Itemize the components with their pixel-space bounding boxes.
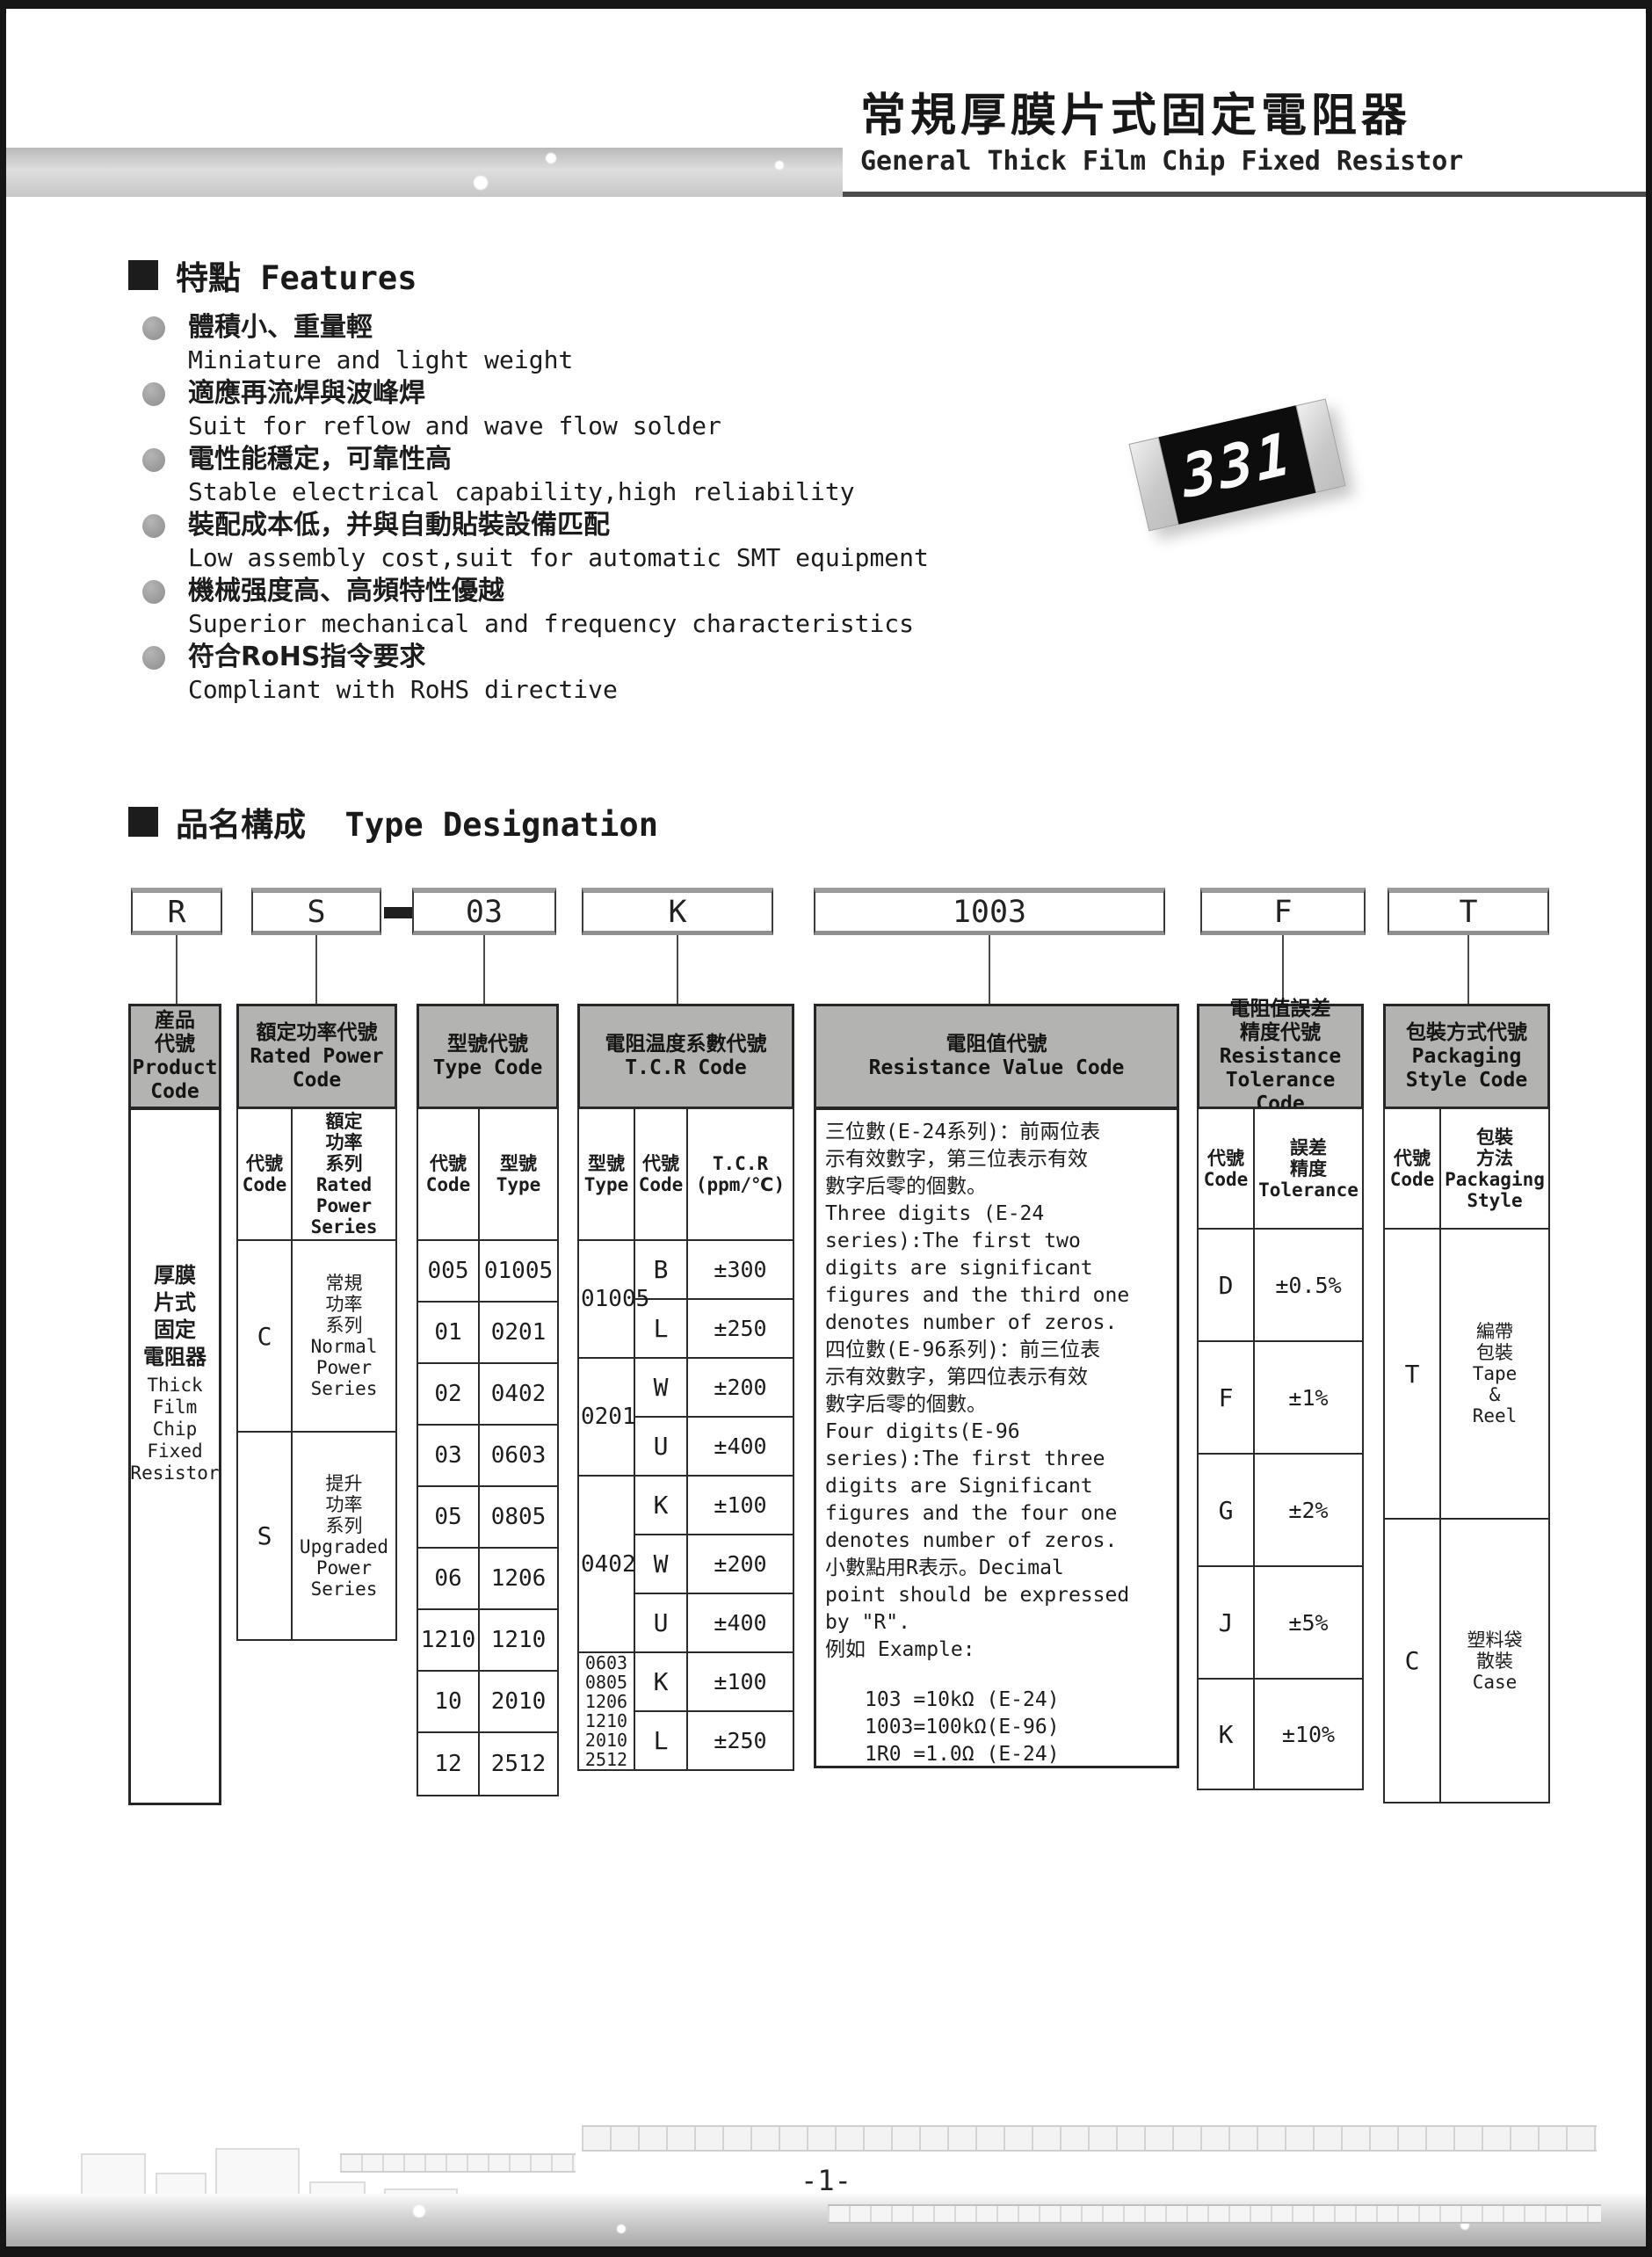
connector-line [989, 935, 990, 1004]
type-size: 0805 [479, 1486, 558, 1548]
type-code: 01 [417, 1302, 479, 1363]
code-box-product: R [131, 888, 222, 935]
feature-text-en: Compliant with RoHS directive [188, 674, 933, 706]
rated-power-column: 代號 Code 額定 功率 系列 Rated Power Series C 常規… [236, 1107, 397, 1641]
type-designation-heading: 品名構成 Type Designation [128, 798, 658, 845]
tcr-column: 型號 Type 代號 Code T.C.R (ppm/℃) 01005 B ±3… [577, 1107, 794, 1770]
type-size: 1206 [479, 1548, 558, 1609]
tolerance-code: J [1198, 1566, 1254, 1679]
feature-text-en: Suit for reflow and wave flow solder [188, 410, 933, 442]
feature-text-zh: 適應再流焊與波峰焊 [188, 377, 933, 410]
decor-squares-strip [582, 2125, 1597, 2152]
tcr-value: ±300 [687, 1240, 793, 1299]
tcr-type-list: 0603 0805 1206 1210 2010 2512 [578, 1652, 634, 1770]
tcr-value: ±400 [687, 1417, 793, 1476]
tcr-value: ±100 [687, 1476, 793, 1535]
tcr-value: ±200 [687, 1535, 793, 1593]
column-header-product: 産品 代號 Product Code [128, 1004, 221, 1109]
type-code: 1210 [417, 1609, 479, 1671]
tcr-code: W [634, 1535, 687, 1593]
page-title-zh: 常規厚膜片式固定電阻器 [860, 90, 1493, 142]
feature-text-zh: 機械强度高、高頻特性優越 [188, 575, 933, 608]
tcr-code: W [634, 1358, 687, 1417]
product-code-cell: 厚膜 片式 固定 電阻器 Thick Film Chip Fixed Resis… [128, 1107, 221, 1805]
packaging-column: 代號 Code 包裝 方法 Packaging Style T 編帶 包裝 Ta… [1383, 1107, 1550, 1803]
type-code-column: 代號 Code 型號 Type 00501005 010201 020402 0… [417, 1107, 559, 1796]
type-code: 005 [417, 1240, 479, 1302]
tolerance-code: K [1198, 1679, 1254, 1789]
tcr-value: ±400 [687, 1593, 793, 1652]
code-box-resistance: 1003 [814, 888, 1165, 935]
subheader-code: 代號 Code [634, 1108, 687, 1240]
connector-line [677, 935, 678, 1004]
resistor-chip-photo: 331 [1128, 398, 1345, 531]
feature-item: 適應再流焊與波峰焊 Suit for reflow and wave flow … [142, 377, 933, 442]
tcr-value: ±250 [687, 1299, 793, 1358]
tolerance-value: ±2% [1254, 1454, 1363, 1566]
resistance-value-examples: 103 =10kΩ (E-24) 1003=100kΩ(E-96) 1R0 =1… [865, 1687, 1177, 1768]
type-code: 02 [417, 1363, 479, 1425]
tcr-type: 01005 [578, 1240, 634, 1358]
tolerance-value: ±10% [1254, 1679, 1363, 1789]
bullet-icon [142, 646, 165, 670]
tolerance-code: G [1198, 1454, 1254, 1566]
feature-item: 符合RoHS指令要求 Compliant with RoHS directive [142, 641, 933, 706]
tcr-code: K [634, 1652, 687, 1711]
bullet-icon [142, 580, 165, 604]
tolerance-value: ±0.5% [1254, 1229, 1363, 1341]
power-code: S [237, 1432, 292, 1640]
power-series: 提升 功率 系列 Upgraded Power Series [292, 1432, 396, 1640]
tolerance-code: F [1198, 1341, 1254, 1454]
subheader-series: 額定 功率 系列 Rated Power Series [292, 1108, 396, 1240]
feature-item: 機械强度高、高頻特性優越 Superior mechanical and fre… [142, 575, 933, 640]
packaging-code: C [1384, 1519, 1440, 1803]
type-code: 05 [417, 1486, 479, 1548]
features-section-heading: 特點 Features [128, 251, 417, 299]
feature-text-en: Stable electrical capability,high reliab… [188, 476, 933, 508]
type-size: 2010 [479, 1671, 558, 1732]
tcr-code: K [634, 1476, 687, 1535]
subheader-code: 代號 Code [417, 1108, 479, 1240]
feature-text-en: Miniature and light weight [188, 345, 933, 376]
resistor-body: 331 [1159, 405, 1316, 524]
code-box-tolerance: F [1200, 888, 1366, 935]
resistance-value-cell: 三位數(E-24系列)：前兩位表 示有效數字，第三位表示有效 數字后零的個數。 … [814, 1107, 1179, 1768]
header-gradient-band [6, 148, 843, 197]
tcr-code: U [634, 1593, 687, 1652]
tcr-code: U [634, 1417, 687, 1476]
feature-text-zh: 電性能穩定，可靠性高 [188, 443, 933, 476]
tcr-value: ±250 [687, 1711, 793, 1770]
connector-line [1282, 935, 1284, 1004]
type-code: 03 [417, 1425, 479, 1486]
tcr-type: 0402 [578, 1476, 634, 1652]
features-heading-label: 特點 Features [176, 251, 417, 299]
power-code: C [237, 1240, 292, 1432]
code-box-tcr: K [582, 888, 773, 935]
subheader-code: 代號 Code [237, 1108, 292, 1240]
section-square-icon [128, 260, 158, 290]
tcr-value: ±100 [687, 1652, 793, 1711]
code-separator-dash [384, 907, 412, 918]
datasheet-page: 常規厚膜片式固定電阻器 General Thick Film Chip Fixe… [0, 0, 1652, 2257]
subheader-type: 型號 Type [578, 1108, 634, 1240]
bullet-icon [142, 448, 165, 472]
type-code: 06 [417, 1548, 479, 1609]
column-header-tcr: 電阻温度系數代號 T.C.R Code [577, 1004, 794, 1109]
bullet-icon [142, 382, 165, 406]
column-header-power: 額定功率代號 Rated Power Code [236, 1004, 397, 1109]
bullet-icon [142, 316, 165, 340]
feature-text-zh: 符合RoHS指令要求 [188, 641, 933, 674]
feature-text-en: Superior mechanical and frequency charac… [188, 608, 933, 640]
tcr-code: L [634, 1711, 687, 1770]
subheader-code: 代號 Code [1198, 1108, 1254, 1229]
section-square-icon [128, 807, 158, 837]
type-size: 0402 [479, 1363, 558, 1425]
product-name-en: Thick Film Chip Fixed Resistor [130, 1375, 219, 1484]
type-code: 12 [417, 1732, 479, 1796]
connector-line [483, 935, 485, 1004]
column-header-packaging: 包裝方式代號 Packaging Style Code [1383, 1004, 1550, 1109]
packaging-style: 塑料袋 散裝 Case [1440, 1519, 1549, 1803]
feature-item: 裝配成本低，并與自動貼裝設備匹配 Low assembly cost,suit … [142, 509, 933, 574]
header-titles: 常規厚膜片式固定電阻器 General Thick Film Chip Fixe… [860, 90, 1493, 178]
feature-text-zh: 體積小、重量輕 [188, 311, 933, 345]
subheader-value: T.C.R (ppm/℃) [687, 1108, 793, 1240]
power-series: 常規 功率 系列 Normal Power Series [292, 1240, 396, 1432]
subheader-code: 代號 Code [1384, 1108, 1440, 1229]
tcr-type: 0201 [578, 1358, 634, 1476]
connector-line [1467, 935, 1469, 1004]
column-header-type: 型號代號 Type Code [417, 1004, 559, 1109]
tcr-value: ±200 [687, 1358, 793, 1417]
tolerance-value: ±1% [1254, 1341, 1363, 1454]
packaging-code: T [1384, 1229, 1440, 1519]
tolerance-column: 代號 Code 誤差 精度 Tolerance D±0.5% F±1% G±2%… [1197, 1107, 1364, 1790]
connector-line [176, 935, 178, 1004]
product-name-zh: 厚膜 片式 固定 電阻器 [143, 1262, 206, 1371]
column-header-resistance: 電阻值代號 Resistance Value Code [814, 1004, 1179, 1109]
type-code-table: 代號 Code 型號 Type 00501005 010201 020402 0… [417, 1107, 559, 1796]
code-box-type: 03 [412, 888, 556, 935]
connector-line [315, 935, 317, 1004]
feature-text-zh: 裝配成本低，并與自動貼裝設備匹配 [188, 509, 933, 542]
feature-item: 體積小、重量輕 Miniature and light weight [142, 311, 933, 376]
feature-text-en: Low assembly cost,suit for automatic SMT… [188, 542, 933, 574]
tolerance-code: D [1198, 1229, 1254, 1341]
type-code: 10 [417, 1671, 479, 1732]
type-designation-label: 品名構成 Type Designation [176, 798, 658, 845]
feature-item: 電性能穩定，可靠性高 Stable electrical capability,… [142, 443, 933, 508]
tolerance-value: ±5% [1254, 1566, 1363, 1679]
tolerance-table: 代號 Code 誤差 精度 Tolerance D±0.5% F±1% G±2%… [1197, 1107, 1364, 1790]
packaging-table: 代號 Code 包裝 方法 Packaging Style T 編帶 包裝 Ta… [1383, 1107, 1550, 1803]
subheader-type: 型號 Type [479, 1108, 558, 1240]
type-size: 0603 [479, 1425, 558, 1486]
page-title-en: General Thick Film Chip Fixed Resistor [860, 146, 1493, 178]
tcr-table: 型號 Type 代號 Code T.C.R (ppm/℃) 01005 B ±3… [577, 1107, 794, 1771]
packaging-style: 編帶 包裝 Tape & Reel [1440, 1229, 1549, 1519]
type-size: 1210 [479, 1609, 558, 1671]
decor-squares-strip-bottom [828, 2204, 1601, 2224]
header-underline [843, 192, 1646, 197]
resistor-marking: 331 [1178, 418, 1296, 512]
subheader-style: 包裝 方法 Packaging Style [1440, 1108, 1549, 1229]
type-size: 2512 [479, 1732, 558, 1796]
subheader-tolerance: 誤差 精度 Tolerance [1254, 1108, 1363, 1229]
resistance-value-description: 三位數(E-24系列)：前兩位表 示有效數字，第三位表示有效 數字后零的個數。 … [816, 1110, 1177, 1664]
bullet-icon [142, 514, 165, 538]
rated-power-table: 代號 Code 額定 功率 系列 Rated Power Series C 常規… [236, 1107, 397, 1641]
column-header-tolerance: 電阻值誤差 精度代號 Resistance Tolerance Code [1197, 1004, 1364, 1109]
page-number: -1- [6, 2164, 1646, 2197]
code-box-packaging: T [1388, 888, 1549, 935]
features-list: 體積小、重量輕 Miniature and light weight 適應再流焊… [142, 311, 933, 707]
code-box-power: S [251, 888, 381, 935]
type-size: 0201 [479, 1302, 558, 1363]
type-size: 01005 [479, 1240, 558, 1302]
